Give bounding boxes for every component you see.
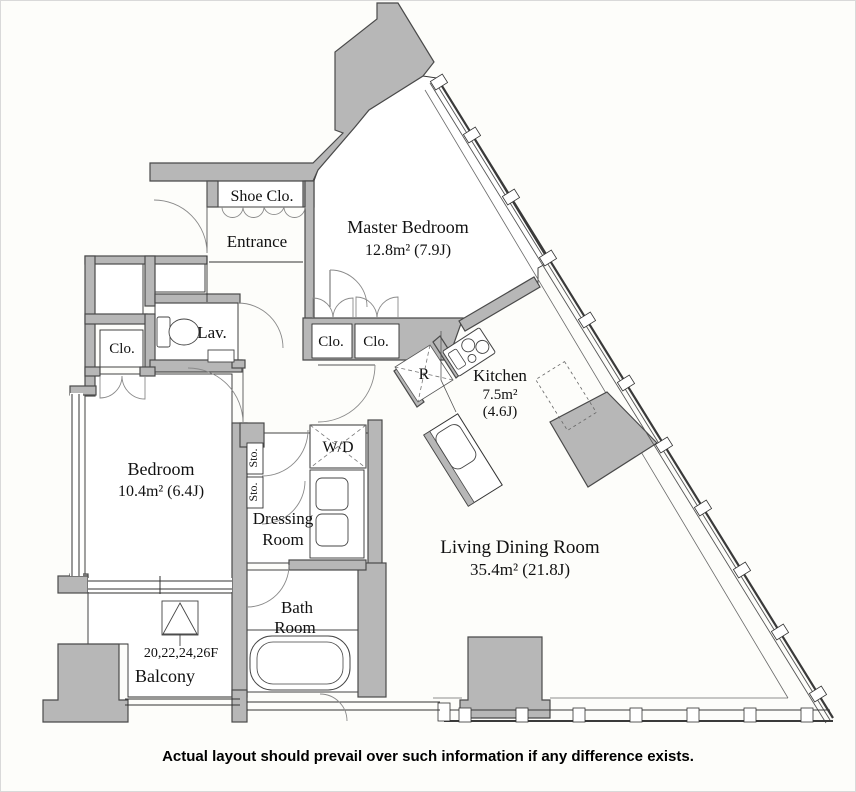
lav-door-arc <box>238 303 283 348</box>
window-bedroom-left <box>70 393 83 576</box>
label-kitchen: Kitchen <box>473 366 527 385</box>
kitchen-island <box>424 414 502 506</box>
wall-bath-bottom-stub <box>232 690 247 722</box>
entrance-door-arc <box>154 200 207 253</box>
label-closet-b: Clo. <box>363 334 388 350</box>
shoe-closet-doors <box>222 207 305 218</box>
wall-bath-top <box>289 560 366 570</box>
label-living-dining-area: 35.4m² (21.8J) <box>470 560 570 579</box>
floor-plan-drawing: Shoe Clo. Entrance Master Bedroom 12.8m²… <box>0 0 856 742</box>
label-master-bedroom-area: 12.8m² (7.9J) <box>365 242 451 259</box>
label-living-dining: Living Dining Room <box>440 537 600 558</box>
label-closet-west: Clo. <box>109 341 134 357</box>
label-dressing-2: Room <box>262 530 304 549</box>
lav-sink <box>208 350 234 362</box>
label-shoe-closet: Shoe Clo. <box>230 188 293 205</box>
wall-stub <box>140 367 155 376</box>
label-kitchen-area-j: (4.6J) <box>483 404 518 420</box>
floor-plan-page: Shoe Clo. Entrance Master Bedroom 12.8m²… <box>0 0 856 792</box>
label-bedroom: Bedroom <box>128 459 195 479</box>
window-balcony-door <box>88 576 232 594</box>
label-master-bedroom: Master Bedroom <box>347 217 468 237</box>
label-lavatory: Lav. <box>197 323 227 342</box>
label-balcony: Balcony <box>135 666 195 686</box>
wall-bedroom-east <box>232 423 247 697</box>
label-bedroom-area: 10.4m² (6.4J) <box>118 483 204 500</box>
wall-under-shaft <box>85 314 147 324</box>
vanity-counter <box>310 470 364 558</box>
bath-bottom-arc <box>320 694 347 721</box>
wall-dressing-east <box>368 420 382 565</box>
hall-ld-door-arc <box>318 365 375 422</box>
label-bath-2: Room <box>274 618 316 637</box>
label-refrigerator: R <box>419 366 430 383</box>
label-washer-dryer: W/D <box>322 439 353 456</box>
label-kitchen-area-m2: 7.5m² <box>483 387 518 403</box>
label-entrance: Entrance <box>227 232 287 251</box>
label-closet-a: Clo. <box>318 334 343 350</box>
balcony-railing <box>125 699 240 705</box>
wall-balcony-topleft <box>58 576 88 593</box>
label-storage-b: Sto. <box>246 482 260 501</box>
label-bath-1: Bath <box>281 598 314 617</box>
label-storage-a: Sto. <box>246 448 260 467</box>
wall-stub <box>207 181 218 207</box>
wall-shaft-divider <box>145 256 155 306</box>
wall-stub <box>85 367 100 376</box>
label-dressing-1: Dressing <box>253 509 314 528</box>
pillar-bottom <box>460 637 550 718</box>
label-balcony-floors: 20,22,24,26F <box>144 646 219 661</box>
pillar-balcony <box>43 644 128 722</box>
window-diagonal-glass2 <box>430 83 826 723</box>
wall-lav-top <box>155 294 240 303</box>
shaft-box-a <box>95 264 143 314</box>
shaft-box-b <box>155 264 205 292</box>
window-bath-bottom <box>247 702 440 710</box>
disclaimer-text: Actual layout should prevail over such i… <box>0 748 856 765</box>
wall-bath-east <box>358 563 386 697</box>
toilet <box>157 317 199 347</box>
